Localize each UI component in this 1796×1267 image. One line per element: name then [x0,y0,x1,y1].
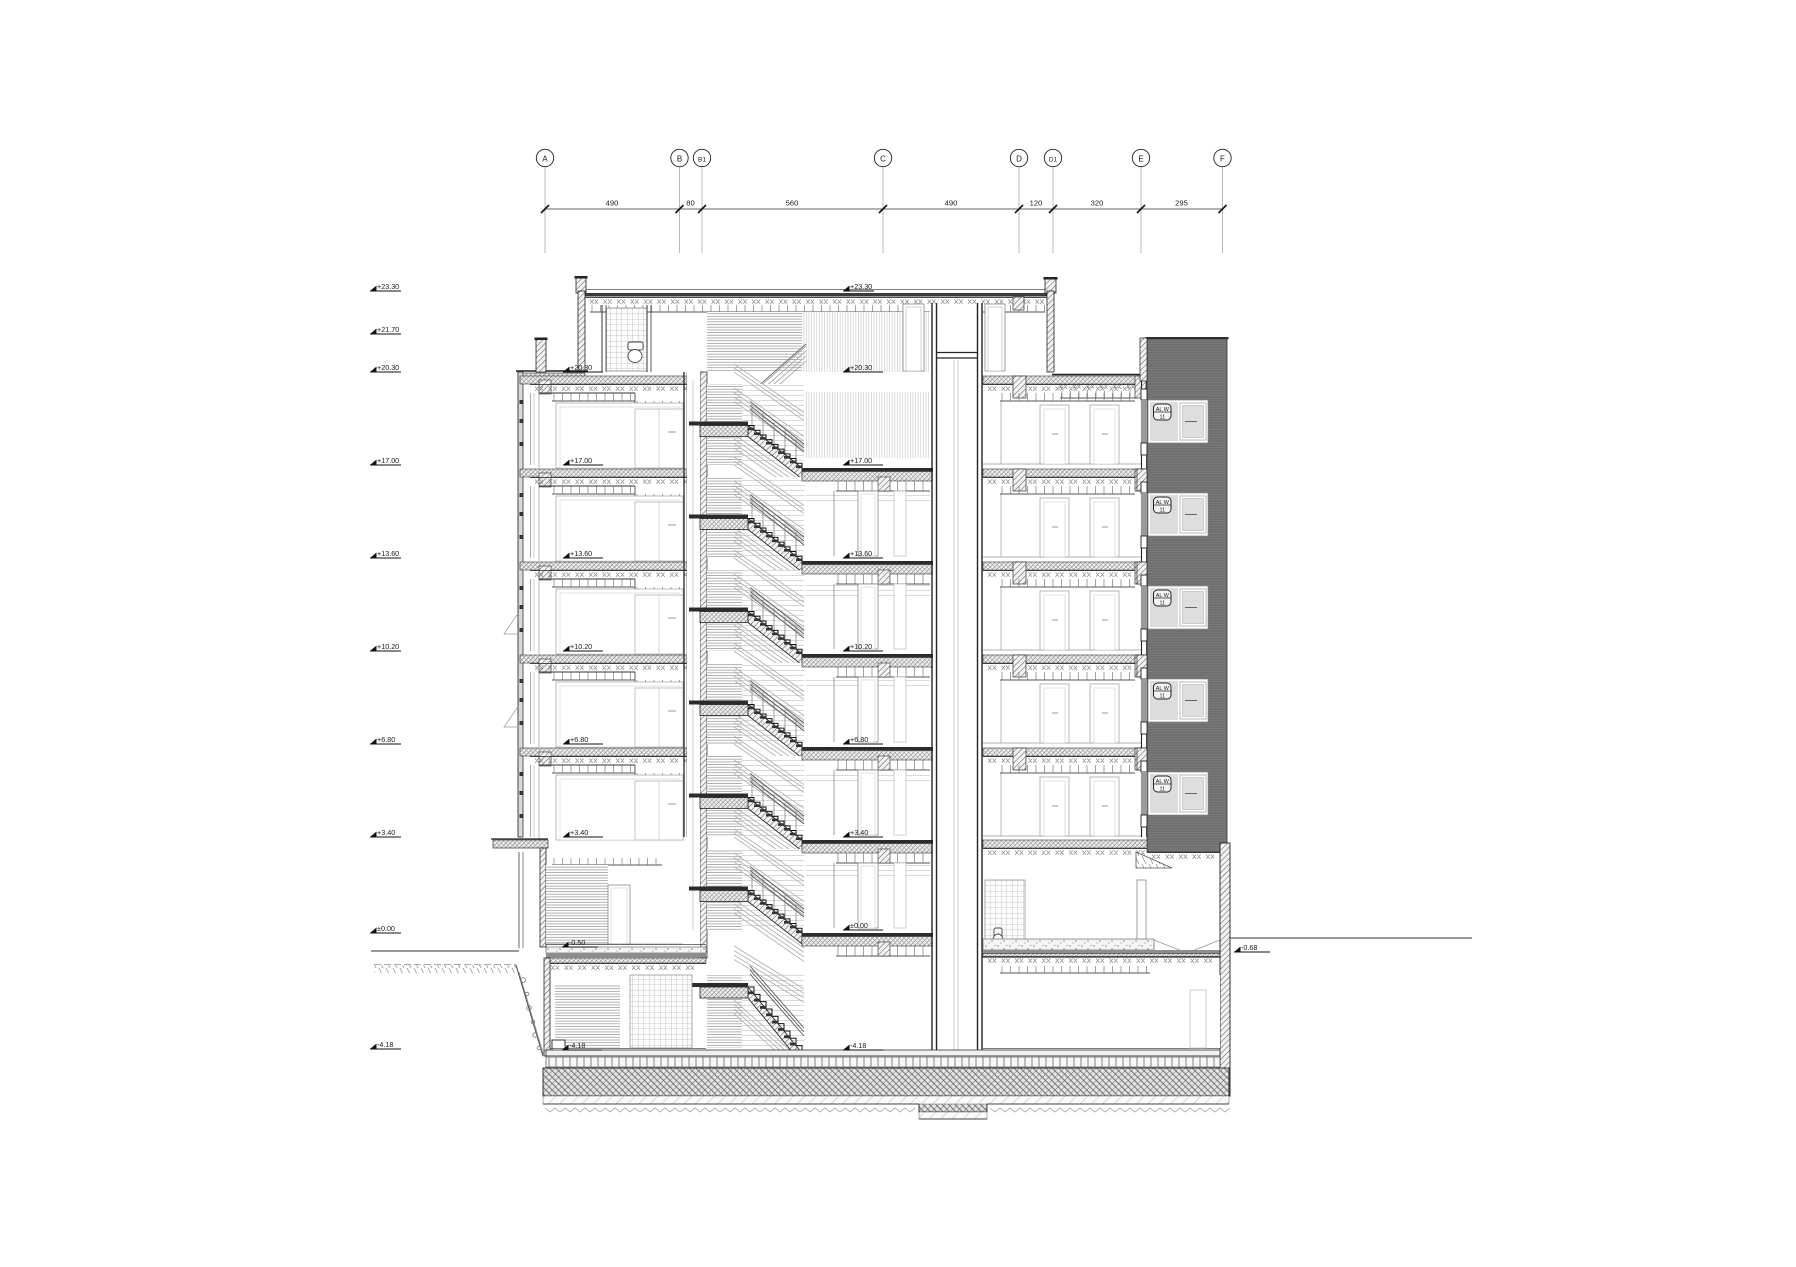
svg-text:AL W: AL W [1156,686,1170,692]
svg-text:+6.80: +6.80 [570,735,588,744]
svg-text:-0.50: -0.50 [569,938,585,947]
svg-text:D1: D1 [1049,156,1058,163]
svg-text:+17.00: +17.00 [850,456,872,465]
svg-text:B: B [677,154,682,163]
svg-text:AL W: AL W [1156,779,1170,785]
svg-text:295: 295 [1175,199,1188,208]
svg-text:+3.40: +3.40 [570,828,588,837]
svg-text:AL W: AL W [1156,500,1170,506]
svg-text:11: 11 [1159,414,1165,420]
svg-text:C: C [880,154,886,163]
svg-text:+20.30: +20.30 [570,363,592,372]
svg-text:560: 560 [786,199,799,208]
svg-text:+10.20: +10.20 [850,642,872,651]
svg-text:+13.60: +13.60 [570,549,592,558]
svg-text:+21.70: +21.70 [377,325,399,334]
svg-text:490: 490 [945,199,958,208]
svg-text:11: 11 [1159,786,1165,792]
svg-text:+10.20: +10.20 [570,642,592,651]
svg-text:-0.68: -0.68 [1241,943,1257,952]
svg-text:-4.18: -4.18 [850,1041,866,1050]
svg-text:+17.00: +17.00 [377,456,399,465]
svg-text:±0.00: ±0.00 [377,924,395,933]
svg-text:+13.60: +13.60 [377,549,399,558]
svg-text:B1: B1 [698,156,706,163]
svg-text:AL W: AL W [1156,407,1170,413]
svg-text:+6.80: +6.80 [377,735,395,744]
svg-text:D: D [1016,154,1022,163]
svg-text:+13.60: +13.60 [850,549,872,558]
svg-text:+20.30: +20.30 [377,363,399,372]
svg-text:80: 80 [686,199,694,208]
svg-text:+10.20: +10.20 [377,642,399,651]
svg-text:E: E [1138,154,1143,163]
svg-text:+17.00: +17.00 [570,456,592,465]
svg-text:+6.80: +6.80 [850,735,868,744]
svg-text:A: A [542,154,548,163]
svg-text:11: 11 [1159,507,1165,513]
svg-text:490: 490 [606,199,619,208]
svg-text:11: 11 [1159,693,1165,699]
svg-text:+20.30: +20.30 [850,363,872,372]
svg-text:AL W: AL W [1156,593,1170,599]
svg-text:-4.18: -4.18 [377,1040,393,1049]
svg-text:±0.00: ±0.00 [850,921,868,930]
svg-text:320: 320 [1091,199,1104,208]
svg-text:+3.40: +3.40 [850,828,868,837]
svg-text:-4.18: -4.18 [569,1041,585,1050]
svg-text:+23.30: +23.30 [850,282,872,291]
svg-text:F: F [1220,154,1225,163]
svg-text:+3.40: +3.40 [377,828,395,837]
svg-text:120: 120 [1030,199,1043,208]
svg-text:11: 11 [1159,600,1165,606]
svg-text:+23.30: +23.30 [377,282,399,291]
